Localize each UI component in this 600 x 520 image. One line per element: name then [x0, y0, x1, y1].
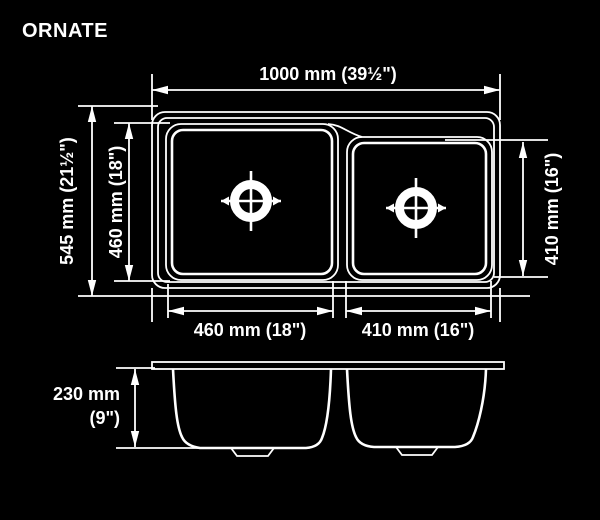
dim-label-bowl-height-in: (9") [89, 408, 120, 428]
side-left-bowl-profile [173, 369, 331, 448]
sink-side-view: 230 mm (9") [53, 362, 504, 456]
dim-label-right-bowl-depth: 410 mm (16") [542, 153, 562, 266]
dim-label-right-bowl-width: 410 mm (16") [362, 320, 475, 340]
sink-top-view [152, 112, 500, 288]
side-right-bowl-profile [347, 369, 486, 447]
dim-label-left-bowl-width: 460 mm (18") [194, 320, 307, 340]
sink-rim-outer [152, 112, 500, 288]
diagram-svg: ORNATE [0, 0, 600, 520]
side-rim-bar [152, 362, 504, 369]
ledge-contour [328, 124, 362, 137]
sink-spec-diagram: ORNATE [0, 0, 600, 520]
dim-label-overall-width: 1000 mm (39½") [259, 64, 397, 84]
drain-crosshair-icon [386, 178, 446, 238]
dim-label-overall-depth: 545 mm (21½") [57, 137, 77, 265]
dim-label-left-bowl-depth: 460 mm (18") [106, 146, 126, 259]
drain-crosshair-icon [221, 171, 281, 231]
dim-label-bowl-height-mm: 230 mm [53, 384, 120, 404]
page-title: ORNATE [22, 20, 108, 42]
